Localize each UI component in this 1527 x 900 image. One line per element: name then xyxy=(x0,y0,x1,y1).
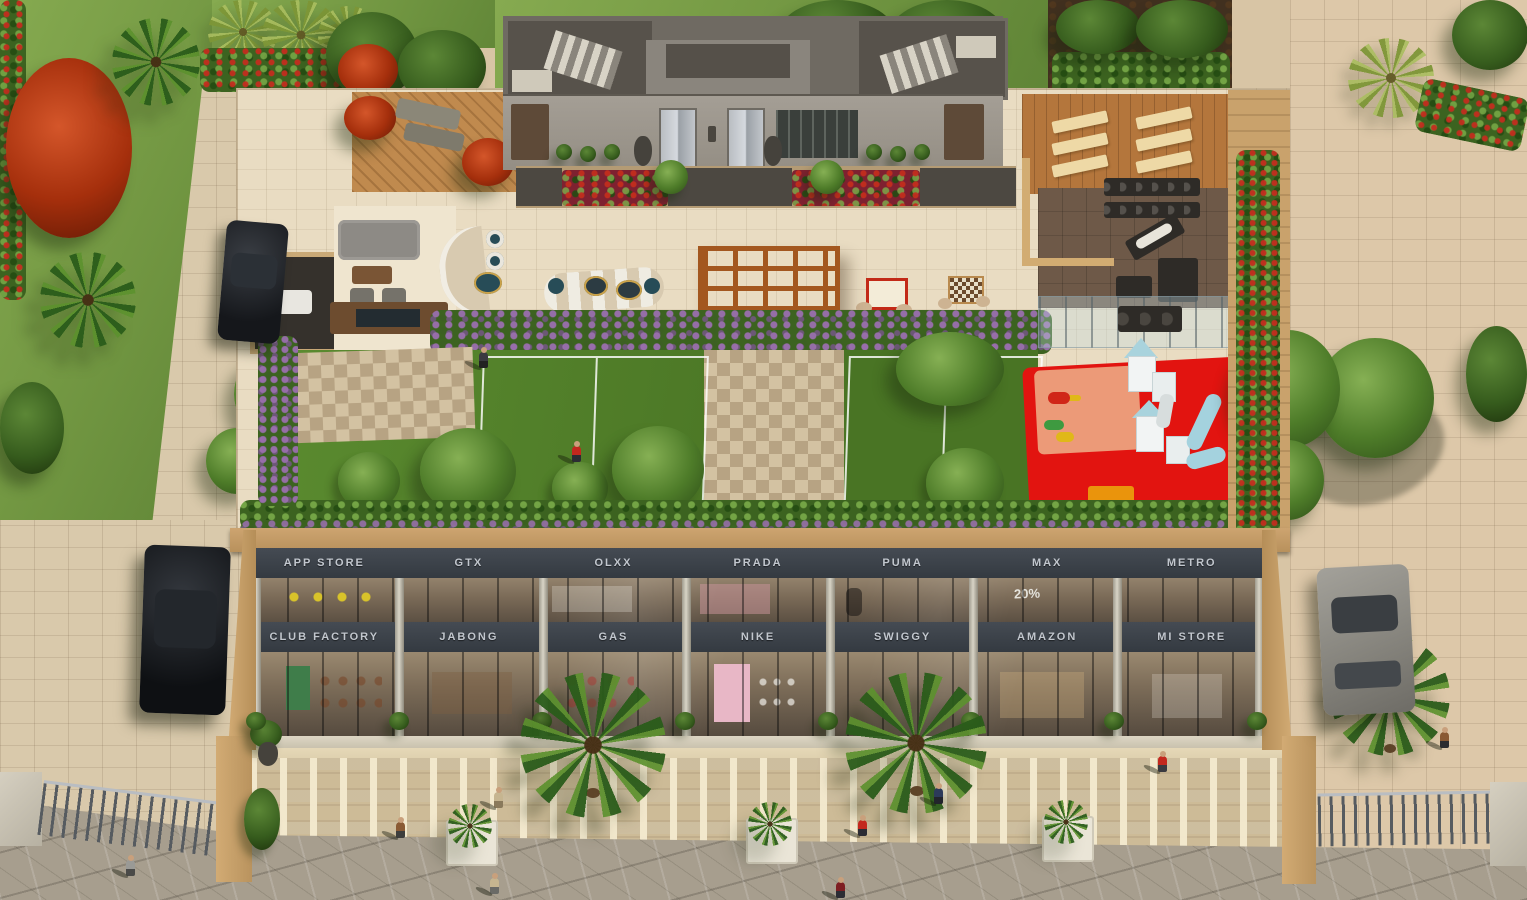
gate-pillar xyxy=(1282,736,1316,884)
left-parapet-planting xyxy=(258,336,298,506)
potted-plant xyxy=(866,144,882,160)
right-parapet-planting xyxy=(1236,150,1280,538)
parked-car-black xyxy=(217,220,289,345)
person xyxy=(494,792,503,808)
sofa xyxy=(338,220,420,260)
car-windshield xyxy=(230,252,279,290)
store-sign-amazon: AMAZON xyxy=(975,631,1120,643)
playground-soft-area xyxy=(1034,365,1142,454)
store-sign-jabong: JABONG xyxy=(397,631,542,643)
person xyxy=(572,446,581,462)
potted-plant xyxy=(556,144,572,160)
storefront-pot-plant xyxy=(246,712,266,730)
dumbbell-rack xyxy=(1104,202,1200,218)
person xyxy=(490,878,499,894)
gym-partition-wall xyxy=(1022,258,1114,266)
storefront-pot-plant xyxy=(389,712,409,730)
store-sign-max: MAX xyxy=(975,557,1120,569)
planter-box xyxy=(920,168,1016,206)
decor-urn xyxy=(634,136,652,166)
potted-bamboo xyxy=(244,788,280,850)
tree xyxy=(1136,0,1228,58)
car-roof-glass xyxy=(153,589,217,649)
upper-fascia-band: APP STORE GTX OLXX PRADA PUMA MAX METRO xyxy=(252,548,1264,578)
chair xyxy=(938,298,952,309)
planter-palm xyxy=(748,802,792,846)
person xyxy=(934,788,943,804)
potted-plant xyxy=(604,144,620,160)
elevator-call-panel xyxy=(708,126,716,142)
person xyxy=(836,882,845,898)
gym-equipment xyxy=(1116,276,1152,298)
planter-palm xyxy=(1044,800,1088,844)
store-sign-app-store: APP STORE xyxy=(252,557,397,569)
person xyxy=(1440,732,1449,748)
lounge-chair xyxy=(486,230,504,248)
facade-side-frame-right xyxy=(1262,530,1292,750)
bush xyxy=(896,332,1004,406)
shrub xyxy=(1466,326,1527,422)
red-shrub xyxy=(344,96,396,140)
gym-partition-wall xyxy=(1022,158,1030,266)
chair xyxy=(976,296,990,307)
stair-landing xyxy=(956,36,996,58)
parked-car-black-large xyxy=(139,545,231,716)
person xyxy=(1158,756,1167,772)
planter-palm xyxy=(448,804,492,848)
parked-car-silver xyxy=(1316,564,1416,717)
tree xyxy=(1452,0,1527,70)
potted-plant xyxy=(580,146,596,162)
round-table xyxy=(474,272,502,294)
storefront-pot-plant xyxy=(818,712,838,730)
concrete-block xyxy=(0,772,42,846)
lounge-chair xyxy=(486,252,504,270)
store-sign-gas: GAS xyxy=(541,631,686,643)
potted-plant xyxy=(890,146,906,162)
checker-path xyxy=(294,347,475,443)
elevator-door xyxy=(659,108,697,168)
decor-urn xyxy=(764,136,782,166)
core-penthouse-inset xyxy=(666,44,790,78)
promenade-palm xyxy=(520,672,666,818)
planter-box xyxy=(516,168,562,206)
toy-tricycle xyxy=(1048,392,1070,404)
store-sign-swiggy: SWIGGY xyxy=(830,631,975,643)
car-windshield xyxy=(1331,594,1399,633)
palm-tree xyxy=(112,18,200,106)
spin-bikes xyxy=(1118,306,1182,332)
coffee-table xyxy=(352,266,392,284)
concrete-pillar xyxy=(1490,782,1527,866)
storefront-pot-plant xyxy=(1104,712,1124,730)
elevator-door xyxy=(727,108,765,168)
plant-pot xyxy=(258,742,278,766)
toy-rocking-horse xyxy=(1056,432,1074,442)
lounge-chair xyxy=(644,278,660,294)
ball-bush xyxy=(810,160,844,194)
core-door xyxy=(511,104,549,160)
store-sign-gtx: GTX xyxy=(397,557,542,569)
store-sign-club-factory: CLUB FACTORY xyxy=(252,631,397,643)
palm-tree xyxy=(40,252,136,348)
store-sign-mi-store: MI STORE xyxy=(1119,631,1264,643)
store-sign-nike: NIKE xyxy=(686,631,831,643)
toy-rocker xyxy=(1044,420,1064,430)
round-table xyxy=(616,280,642,300)
red-flower-planter xyxy=(562,170,668,206)
store-sign-olxx: OLXX xyxy=(541,557,686,569)
red-flowering-tree xyxy=(6,58,132,238)
car-rear-glass xyxy=(1334,660,1401,689)
store-sign-puma: PUMA xyxy=(830,557,975,569)
core-door xyxy=(944,104,984,160)
ball-bush xyxy=(654,160,688,194)
person xyxy=(126,860,135,876)
person xyxy=(479,352,488,368)
tv-screen xyxy=(356,309,420,327)
storefront-pot-plant xyxy=(675,712,695,730)
store-sign-metro: METRO xyxy=(1119,557,1264,569)
tree xyxy=(1056,0,1140,54)
boundary-railing xyxy=(1318,790,1495,846)
person xyxy=(858,820,867,836)
aerial-render-scene: APP STORE GTX OLXX PRADA PUMA MAX METRO … xyxy=(0,0,1527,900)
promenade-palm xyxy=(845,672,987,814)
stair-landing xyxy=(512,70,552,92)
facade-plinth xyxy=(252,736,1264,748)
round-table xyxy=(584,276,608,296)
potted-plant xyxy=(914,144,930,160)
dumbbell-rack xyxy=(1104,178,1200,196)
shrub xyxy=(0,382,64,474)
louver-window xyxy=(776,110,858,158)
storefront-pot-plant xyxy=(1247,712,1267,730)
store-sign-prada: PRADA xyxy=(686,557,831,569)
lounge-chair xyxy=(548,278,564,294)
person xyxy=(396,822,405,838)
